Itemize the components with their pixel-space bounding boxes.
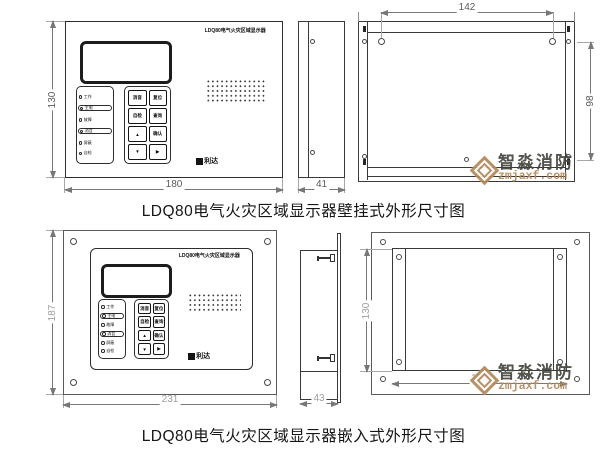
lamp-label: 消音 [85,129,93,133]
recessed-front-view: LDQ80电气火灾区域显示器 工作 主电 故障 消音 屏蔽 自检 消音 复位 自… [90,248,253,370]
lamp-icon [79,118,83,122]
key-confirm: 确认 [149,126,167,142]
lamp-label: 主电 [107,314,115,318]
bolt-head [330,254,335,262]
dim-arrow [380,10,388,16]
device-title: LDQ80电气火灾区域显示器 [205,29,266,34]
watermark-logo-inner [477,373,493,389]
watermark-brand: 智淼消防 [498,364,574,381]
lamp-icon [101,323,105,327]
brand-logo: 利达 [196,158,219,165]
indicator-row: 工作 [78,95,112,99]
lamp-icon [101,305,105,309]
watermark-brand: 智淼消防 [498,154,574,171]
lamp-label: 主电 [85,106,93,110]
key-query: 查询 [149,108,167,124]
watermark-logo-inner [477,163,493,179]
key-query: 查询 [153,316,165,328]
wall-front-view: LDQ80电气火灾区域显示器 工作 主电 故障 消音 屏蔽 自检 消音 复位 自… [65,21,283,178]
dim-wall-back-hole-height: 98 [590,42,591,160]
keypad: 消音 复位 自检 查询 ▲ 确认 ▼ ▶ [124,86,170,164]
indicator-row: 自检 [100,349,124,353]
dim-arrow [338,187,346,193]
notch [363,159,366,165]
lamp-label: 屏蔽 [106,341,114,345]
corner-tick [358,12,359,22]
dim-label: 130 [362,300,372,321]
screw-hole [310,150,315,155]
indicator-row: 屏蔽 [100,341,124,345]
bolt [317,353,337,363]
dim-arrow [391,381,399,387]
lamp-icon [79,95,83,99]
speaker-grille [206,79,266,104]
indicator-panel: 工作 主电 故障 消音 屏蔽 自检 [98,299,126,359]
watermark-logo-icon [470,156,500,186]
lamp-icon [102,314,106,318]
inner-line [301,371,337,372]
dim-arrow [364,248,370,256]
lamp-label: 故障 [106,323,114,327]
dim-label: 231 [160,395,181,405]
drawing-canvas: LDQ80电气火灾区域显示器 工作 主电 故障 消音 屏蔽 自检 消音 复位 自… [0,0,607,452]
dim-label: 98 [586,93,596,108]
dim-arrow [588,41,594,49]
lamp-icon [102,332,106,336]
key-selftest: 自检 [138,316,150,328]
key-right-icon: ▶ [149,144,167,160]
wall-mounted-caption: LDQ80电气火灾区域显示器壁挂式外形尺寸图 [0,199,607,221]
side-wall-line [367,22,368,180]
dim-recessed-back-height: 130 [366,249,367,372]
recessed-side-flange [337,233,341,403]
extension-line [553,12,554,38]
key-down-icon: ▼ [128,144,146,160]
rail-hole [557,254,563,260]
corner-screw-hole [264,379,271,386]
side-flange-line [308,22,309,177]
lamp-icon [101,341,105,345]
corner-screw-hole [70,379,77,386]
key-up-icon: ▲ [128,126,146,142]
lamp-icon [80,107,84,111]
watermark-logo-icon [470,366,500,396]
dim-arrow [62,402,70,408]
indicator-row: 故障 [100,323,124,327]
lamp-label: 故障 [84,118,92,122]
logo-mark-icon [188,353,195,360]
logo-text: 利达 [204,158,218,165]
lamp-icon [80,130,84,134]
corner-screw-hole [574,239,580,245]
dim-label: 180 [164,180,185,190]
dim-arrow [364,365,370,373]
extension-line [381,12,382,38]
dim-arrow [299,401,307,407]
rail-hole [396,359,402,365]
dim-arrow [50,20,56,28]
dim-label: 142 [457,3,478,13]
dim-label: 130 [48,89,58,110]
lamp-label: 消音 [107,332,115,336]
strip-hole [362,154,367,159]
key-reset: 复位 [149,90,167,106]
corner-tick [574,12,575,22]
mounting-hole [378,38,385,45]
dim-wall-back-hole-span: 142 [381,12,553,13]
keypad: 消音 复位 自检 查询 ▲ 确认 ▼ ▶ [134,299,169,359]
rail-line [405,249,406,370]
rail-line [553,249,554,370]
indicator-row: 自检 [78,151,112,155]
indicator-row: 工作 [100,305,124,309]
key-mute: 消音 [128,90,146,106]
wall-side-view [298,21,345,178]
rail-hole [396,254,402,260]
indicator-row: 主电 [100,313,124,319]
key-reset: 复位 [153,303,165,315]
corner-screw-hole [70,238,77,245]
indicator-row: 消音 [100,331,124,337]
lamp-label: 工作 [106,305,114,309]
dim-arrow [297,187,305,193]
mounting-hole [549,38,556,45]
dim-label: 41 [314,180,329,190]
speaker-grille [188,293,241,311]
lcd-screen [101,264,171,298]
dim-arrow [50,388,56,396]
lamp-label: 自检 [106,349,114,353]
key-mute: 消音 [138,303,150,315]
key-selftest: 自检 [128,108,146,124]
mounting-hole [464,157,469,162]
dim-arrow [64,187,72,193]
watermark-site: zmjaxf.com [498,381,574,393]
dim-arrow [588,153,594,161]
lamp-icon [79,141,83,145]
indicator-row: 屏蔽 [78,141,112,145]
corner-screw-hole [380,376,386,382]
key-down-icon: ▼ [138,343,150,355]
dim-wall-front-width: 180 [65,189,283,190]
top-bracket-line [367,32,566,33]
dim-arrow [276,187,284,193]
dim-label: 187 [48,302,58,323]
key-up-icon: ▲ [138,330,150,342]
logo-mark-icon [196,158,203,165]
recessed-caption: LDQ80电气火灾区域显示器嵌入式外形尺寸图 [0,424,607,446]
dim-wall-front-height: 130 [52,21,53,178]
lamp-label: 自检 [84,151,92,155]
watermark-text: 智淼消防 zmjaxf.com [498,154,574,183]
dim-arrow [270,402,278,408]
notch [567,26,570,32]
screw-hole [310,39,315,44]
lcd-screen [80,41,172,83]
dim-wall-side-depth: 41 [298,189,345,190]
key-confirm: 确认 [153,330,165,342]
strip-hole [362,39,367,44]
dim-label: 43 [311,394,326,404]
indicator-row: 主电 [78,105,112,111]
key-right-icon: ▶ [153,343,165,355]
watermark-site: zmjaxf.com [498,171,574,183]
logo-text: 利达 [196,353,210,360]
dim-arrow [546,10,554,16]
bolt [317,253,337,263]
watermark-text: 智淼消防 zmjaxf.com [498,364,574,393]
dim-recessed-front-width: 231 [63,404,277,405]
brand-logo: 利达 [188,353,211,360]
dim-arrow [331,401,339,407]
watermark: 智淼消防 zmjaxf.com [474,154,574,183]
corner-screw-hole [574,376,580,382]
corner-screw-hole [380,239,386,245]
watermark: 智淼消防 zmjaxf.com [474,364,574,393]
recessed-side-view [300,250,338,400]
back-inner-box [392,248,567,371]
indicator-row: 消音 [78,128,112,134]
dim-recessed-front-height: 187 [52,230,53,395]
device-title: LDQ80电气火灾区域显示器 [179,254,240,259]
strip-hole [566,39,571,44]
lamp-icon [79,152,83,156]
lamp-label: 屏蔽 [84,141,92,145]
lamp-icon [101,349,105,353]
notch [363,26,366,32]
bolt-head [330,354,335,362]
lamp-label: 工作 [84,95,92,99]
corner-screw-hole [264,238,271,245]
indicator-panel: 工作 主电 故障 消音 屏蔽 自检 [76,86,114,164]
dim-recessed-side-depth: 43 [300,403,338,404]
dim-arrow [50,229,56,237]
indicator-row: 故障 [78,118,112,122]
dim-arrow [50,171,56,179]
